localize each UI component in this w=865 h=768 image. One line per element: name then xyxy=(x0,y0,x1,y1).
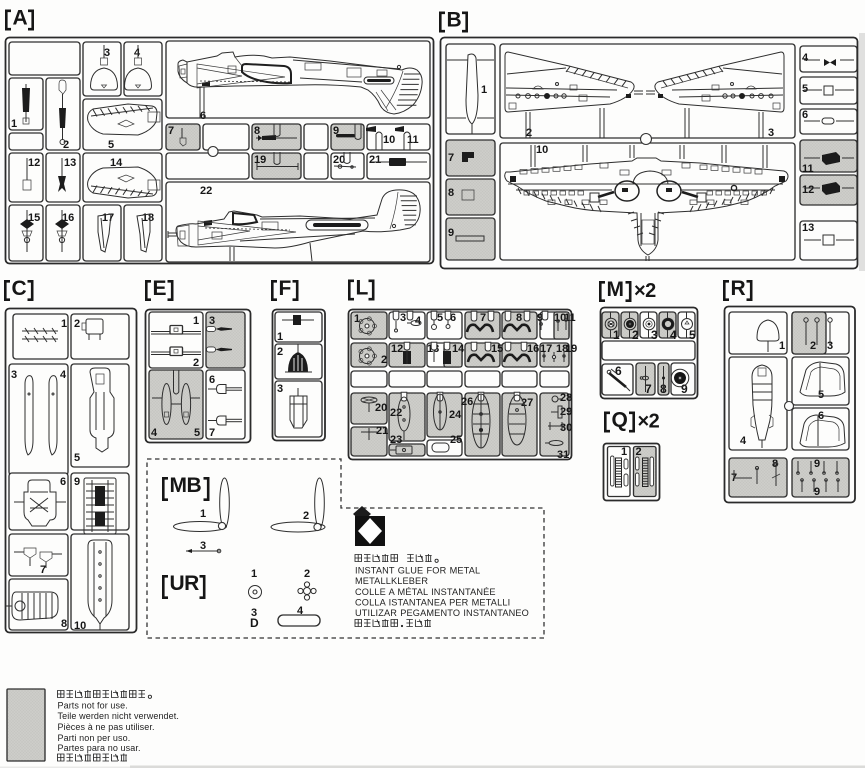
svg-text:7: 7 xyxy=(209,427,215,439)
svg-text:1: 1 xyxy=(200,508,206,520)
svg-text:1: 1 xyxy=(61,318,67,330)
svg-text:E: E xyxy=(153,277,167,300)
svg-text:Parts not for use.: Parts not for use. xyxy=(58,701,128,711)
svg-text:21: 21 xyxy=(376,425,388,437)
svg-text:3: 3 xyxy=(200,540,206,552)
svg-text:15: 15 xyxy=(491,343,503,355)
svg-text:Pièces à ne pas utiliser.: Pièces à ne pas utiliser. xyxy=(58,722,155,732)
svg-text:2: 2 xyxy=(381,354,387,366)
svg-text:8: 8 xyxy=(254,125,260,137)
svg-text:19: 19 xyxy=(565,343,577,355)
svg-text:1: 1 xyxy=(277,331,283,343)
svg-text:12: 12 xyxy=(802,184,814,196)
svg-text:3: 3 xyxy=(11,369,17,381)
svg-text:18: 18 xyxy=(142,212,154,224)
svg-text:4: 4 xyxy=(151,427,158,439)
svg-text:9: 9 xyxy=(814,458,820,470)
svg-text:MB: MB xyxy=(170,474,202,497)
svg-text:4: 4 xyxy=(802,52,809,64)
svg-text:1: 1 xyxy=(613,328,620,342)
svg-text:6: 6 xyxy=(200,110,206,122)
svg-text:24: 24 xyxy=(449,409,462,421)
svg-text:2: 2 xyxy=(193,357,199,369)
svg-text:21: 21 xyxy=(369,154,381,166)
svg-text:COLLE A MÉTAL INSTANTANÉE: COLLE A MÉTAL INSTANTANÉE xyxy=(355,587,496,597)
svg-text:3: 3 xyxy=(104,47,110,59)
svg-text:6: 6 xyxy=(802,109,808,121)
svg-text:11: 11 xyxy=(407,134,419,146)
svg-text:6: 6 xyxy=(615,364,622,378)
svg-text:5: 5 xyxy=(689,328,696,342)
svg-text:3: 3 xyxy=(277,383,283,395)
svg-text:14: 14 xyxy=(452,343,465,355)
svg-text:2: 2 xyxy=(636,446,642,458)
svg-text:20: 20 xyxy=(375,402,387,414)
svg-text:1: 1 xyxy=(251,568,257,580)
svg-text:1: 1 xyxy=(11,118,17,130)
svg-text:5: 5 xyxy=(802,83,808,95)
svg-text:×2: ×2 xyxy=(634,280,656,302)
svg-text:1: 1 xyxy=(193,315,199,327)
svg-text:4: 4 xyxy=(60,369,67,381)
svg-text:2: 2 xyxy=(526,127,532,139)
svg-text:5: 5 xyxy=(74,452,80,464)
svg-text:28: 28 xyxy=(560,392,572,404)
svg-text:12: 12 xyxy=(391,343,403,355)
svg-text:7: 7 xyxy=(645,382,652,396)
svg-text:27: 27 xyxy=(521,397,533,409)
svg-text:2: 2 xyxy=(277,346,283,358)
svg-text:COLLA ISTANTANEA PER METALLI: COLLA ISTANTANEA PER METALLI xyxy=(355,598,510,608)
svg-text:Teile werden nicht verwendet.: Teile werden nicht verwendet. xyxy=(58,711,179,721)
svg-text:UR: UR xyxy=(170,572,200,595)
svg-text:A: A xyxy=(13,7,28,30)
svg-text:Partes para no usar.: Partes para no usar. xyxy=(58,743,141,753)
svg-text:20: 20 xyxy=(333,154,345,166)
svg-text:10: 10 xyxy=(74,620,86,632)
svg-text:11: 11 xyxy=(802,163,814,175)
svg-text:16: 16 xyxy=(527,343,539,355)
svg-text:L: L xyxy=(356,277,369,300)
svg-text:5: 5 xyxy=(194,427,200,439)
svg-text:1: 1 xyxy=(354,313,360,325)
svg-text:17: 17 xyxy=(540,343,552,355)
svg-text:2: 2 xyxy=(304,568,310,580)
svg-text:R: R xyxy=(731,277,746,300)
svg-text:8: 8 xyxy=(448,187,454,199)
svg-text:METALLKLEBER: METALLKLEBER xyxy=(355,576,428,586)
svg-text:3: 3 xyxy=(768,127,774,139)
svg-text:INSTANT GLUE FOR METAL: INSTANT GLUE FOR METAL xyxy=(355,566,480,576)
svg-text:25: 25 xyxy=(450,434,462,446)
svg-text:2: 2 xyxy=(63,139,69,151)
svg-text:5: 5 xyxy=(818,389,824,401)
svg-text:Q: Q xyxy=(612,409,628,432)
svg-text:1: 1 xyxy=(481,84,487,96)
svg-text:8: 8 xyxy=(516,312,522,324)
svg-text:13: 13 xyxy=(64,157,76,169)
svg-text:6: 6 xyxy=(60,476,66,488)
svg-text:22: 22 xyxy=(200,185,212,197)
svg-text:8: 8 xyxy=(772,458,778,470)
svg-text:7: 7 xyxy=(448,152,454,164)
svg-text:F: F xyxy=(279,277,292,300)
svg-text:2: 2 xyxy=(810,340,816,352)
svg-text:12: 12 xyxy=(28,157,40,169)
svg-text:10: 10 xyxy=(383,134,395,146)
svg-text:26: 26 xyxy=(461,396,473,408)
svg-text:19: 19 xyxy=(254,154,266,166)
svg-text:17: 17 xyxy=(102,212,114,224)
svg-text:4: 4 xyxy=(670,328,677,342)
svg-text:3: 3 xyxy=(400,312,406,324)
svg-text:1: 1 xyxy=(779,340,785,352)
svg-text:31: 31 xyxy=(557,449,569,461)
svg-text:13: 13 xyxy=(802,222,814,234)
svg-text:10: 10 xyxy=(536,144,548,156)
svg-text:9: 9 xyxy=(448,227,454,239)
svg-text:3: 3 xyxy=(651,328,658,342)
svg-text:2: 2 xyxy=(303,510,309,522)
svg-text:C: C xyxy=(12,277,27,300)
svg-text:3: 3 xyxy=(251,607,257,619)
svg-text:22: 22 xyxy=(390,407,402,419)
svg-text:9: 9 xyxy=(814,486,820,498)
svg-text:8: 8 xyxy=(61,618,67,630)
svg-text:M: M xyxy=(607,278,624,301)
svg-text:4: 4 xyxy=(740,435,747,447)
svg-text:23: 23 xyxy=(390,434,402,446)
svg-text:5: 5 xyxy=(437,312,443,324)
svg-text:Parti non per uso.: Parti non per uso. xyxy=(58,733,131,743)
svg-text:2: 2 xyxy=(74,318,80,330)
svg-text:B: B xyxy=(447,9,462,32)
svg-text:7: 7 xyxy=(168,125,174,137)
svg-text:1: 1 xyxy=(621,446,627,458)
svg-text:9: 9 xyxy=(74,476,80,488)
svg-text:2: 2 xyxy=(632,328,639,342)
svg-text:UTILIZAR PEGAMENTO INSTANTANEO: UTILIZAR PEGAMENTO INSTANTANEO xyxy=(355,608,529,618)
svg-text:4: 4 xyxy=(297,605,304,617)
svg-text:7: 7 xyxy=(40,564,46,576)
svg-text:7: 7 xyxy=(480,312,486,324)
svg-text:6: 6 xyxy=(209,374,215,386)
svg-text:5: 5 xyxy=(108,139,114,151)
svg-text:3: 3 xyxy=(209,315,215,327)
svg-text:×2: ×2 xyxy=(638,411,660,433)
